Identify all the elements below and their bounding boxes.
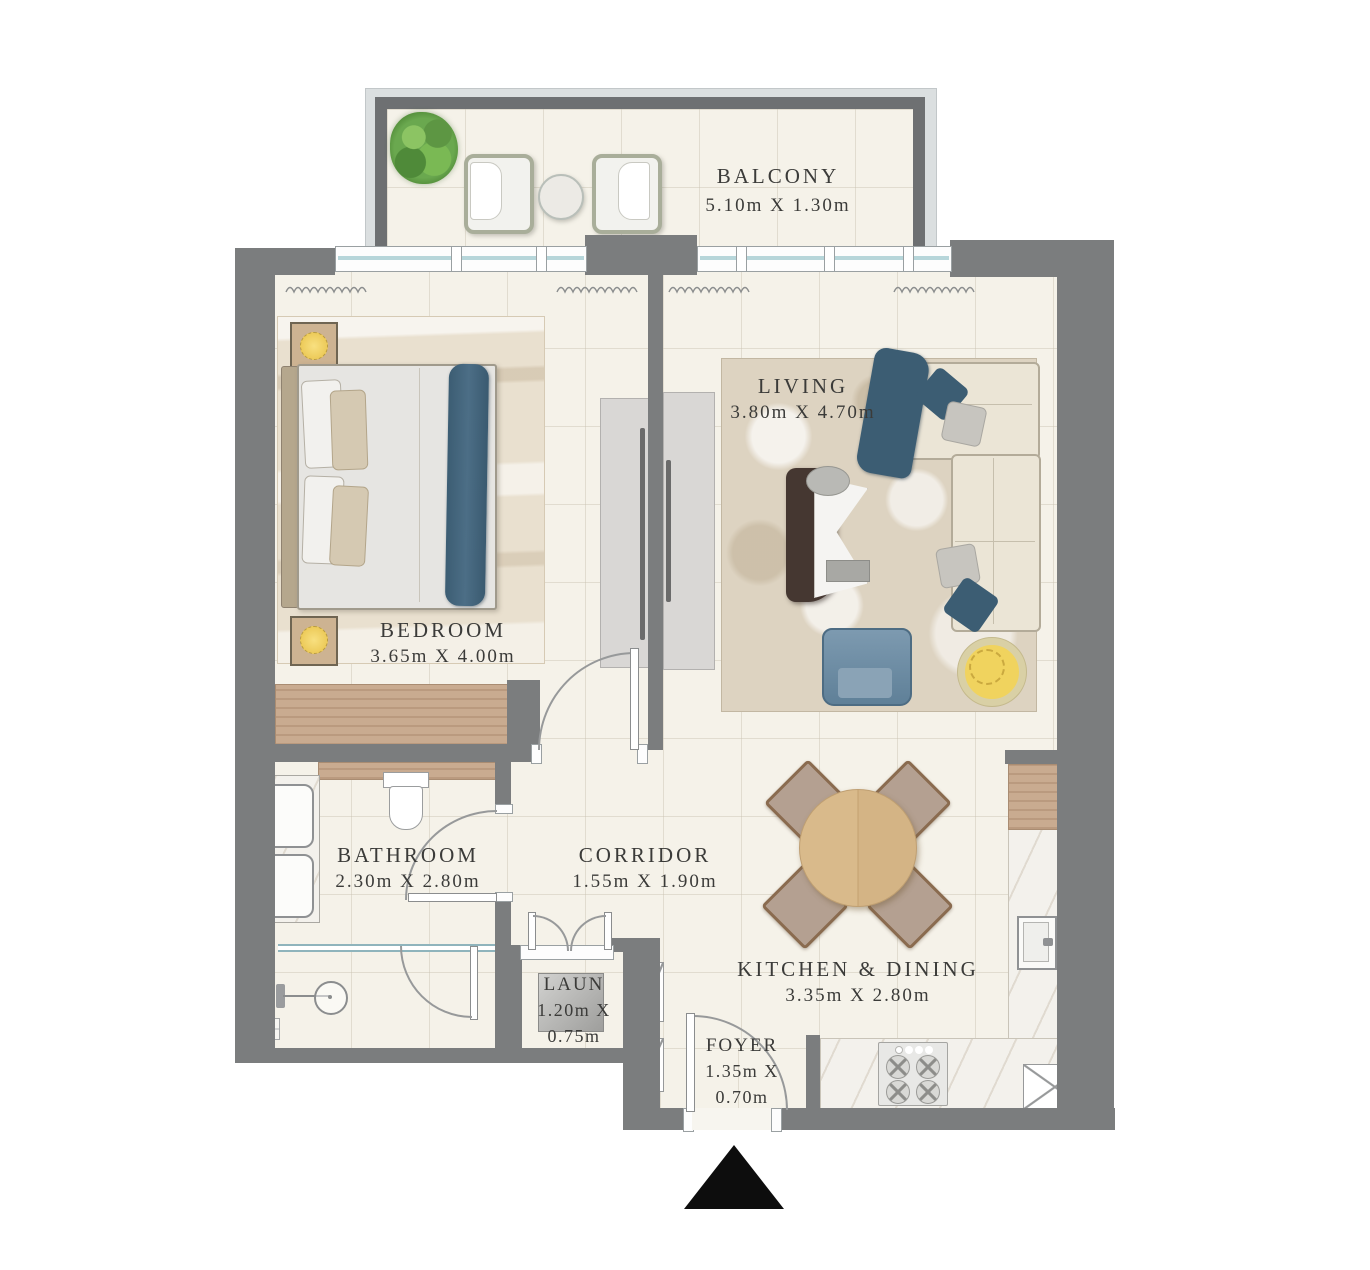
stove bbox=[878, 1042, 948, 1106]
shower-head bbox=[314, 981, 348, 1015]
wall bbox=[623, 945, 660, 1130]
floor-plan: BALCONY 5.10m X 1.30m BEDROOM 3.65m X 4.… bbox=[0, 0, 1370, 1270]
balcony-label: BALCONY bbox=[717, 164, 840, 189]
door-jamb bbox=[771, 1108, 782, 1132]
nightstand-bottom bbox=[290, 616, 338, 666]
laundry-dims-1: 1.20m X bbox=[537, 1000, 611, 1021]
armchair-seat bbox=[838, 668, 892, 698]
laundry-label: LAUN bbox=[544, 974, 605, 996]
balcony-dims: 5.10m X 1.30m bbox=[705, 195, 850, 217]
bedroom-door-leaf bbox=[630, 648, 639, 750]
window-right bbox=[697, 246, 952, 272]
wall bbox=[780, 1108, 1115, 1130]
wardrobe bbox=[275, 684, 512, 746]
plant bbox=[390, 112, 458, 184]
wall bbox=[1005, 750, 1058, 764]
window-mullion bbox=[736, 246, 747, 272]
balcony-wall-left bbox=[375, 97, 387, 248]
chair-cushion bbox=[470, 162, 502, 220]
wall bbox=[648, 272, 663, 750]
balcony-chair-right bbox=[592, 154, 662, 234]
lamp-inner-ring bbox=[969, 649, 1005, 685]
bathroom-dims: 2.30m X 2.80m bbox=[335, 871, 480, 893]
living-label: LIVING bbox=[758, 374, 848, 399]
kitchen-label: KITCHEN & DINING bbox=[737, 957, 979, 982]
sink-faucet bbox=[1043, 938, 1053, 946]
burner bbox=[916, 1080, 940, 1104]
shower-head-center bbox=[328, 995, 332, 999]
entry-threshold bbox=[692, 1108, 771, 1130]
entrance-arrow bbox=[684, 1145, 784, 1209]
floor-lamp bbox=[958, 638, 1026, 706]
bathroom-label: BATHROOM bbox=[337, 843, 479, 868]
curtain-squiggle bbox=[893, 281, 977, 294]
balcony-wall-right bbox=[913, 97, 925, 248]
window-mullion bbox=[536, 246, 547, 272]
wall bbox=[235, 1048, 660, 1063]
burner bbox=[886, 1055, 910, 1079]
tv-bedroom bbox=[640, 428, 645, 640]
sofa-pillow-gray-1 bbox=[940, 400, 987, 447]
balcony-wall-top bbox=[375, 97, 925, 109]
pillow-beige-2 bbox=[329, 485, 369, 567]
sofa-cushion-line bbox=[955, 541, 1035, 542]
lamp bbox=[300, 332, 328, 360]
foyer-label: FOYER bbox=[706, 1035, 778, 1057]
stove-controls bbox=[895, 1046, 903, 1054]
wall bbox=[623, 1108, 685, 1130]
wall bbox=[235, 248, 335, 275]
corridor-label: CORRIDOR bbox=[579, 843, 712, 868]
balcony-side-table bbox=[538, 174, 584, 220]
tv-living bbox=[666, 460, 671, 602]
wall bbox=[507, 680, 540, 746]
kitchen-cabinet-wood bbox=[1008, 764, 1060, 830]
bedroom-dims: 3.65m X 4.00m bbox=[370, 646, 515, 668]
dining-table bbox=[799, 789, 917, 907]
sheet-fold-line bbox=[419, 368, 420, 602]
coffee-table-tray bbox=[826, 560, 870, 582]
curtain-squiggle bbox=[285, 281, 369, 294]
window-left bbox=[335, 246, 587, 272]
balcony-chair-left bbox=[464, 154, 534, 234]
wall bbox=[273, 744, 540, 762]
wall bbox=[806, 1035, 820, 1110]
curtain-squiggle bbox=[668, 281, 752, 294]
wall bbox=[495, 945, 522, 1048]
wall bbox=[495, 898, 511, 948]
kitchen-dims: 3.35m X 2.80m bbox=[785, 985, 930, 1007]
door-jamb bbox=[495, 804, 513, 814]
kitchen-sink bbox=[1017, 916, 1057, 970]
window-mullion bbox=[824, 246, 835, 272]
wall bbox=[1057, 240, 1114, 1130]
laundry-dims-2: 0.75m bbox=[547, 1026, 600, 1047]
wall bbox=[235, 248, 275, 1063]
pillow-beige-1 bbox=[330, 389, 369, 470]
wall bbox=[495, 762, 511, 810]
wall bbox=[585, 235, 697, 275]
curtain-squiggle bbox=[556, 281, 640, 294]
entry-door-leaf bbox=[686, 1013, 695, 1112]
corridor-dims: 1.55m X 1.90m bbox=[572, 871, 717, 893]
chair-cushion bbox=[618, 162, 650, 220]
toilet-bowl bbox=[389, 786, 423, 830]
window-mullion bbox=[451, 246, 462, 272]
coffee-table-vase bbox=[806, 466, 850, 496]
lamp bbox=[300, 626, 328, 654]
bedroom-label: BEDROOM bbox=[380, 618, 506, 643]
foyer-dims-2: 0.70m bbox=[715, 1087, 768, 1108]
bathroom-door-leaf bbox=[408, 893, 497, 902]
burner bbox=[886, 1080, 910, 1104]
foyer-dims-1: 1.35m X bbox=[705, 1061, 779, 1082]
door-jamb bbox=[495, 892, 513, 902]
armchair bbox=[822, 628, 912, 706]
bed-blue-runner bbox=[445, 364, 489, 607]
living-dims: 3.80m X 4.70m bbox=[730, 402, 875, 424]
burner bbox=[916, 1055, 940, 1079]
window-mullion bbox=[903, 246, 914, 272]
